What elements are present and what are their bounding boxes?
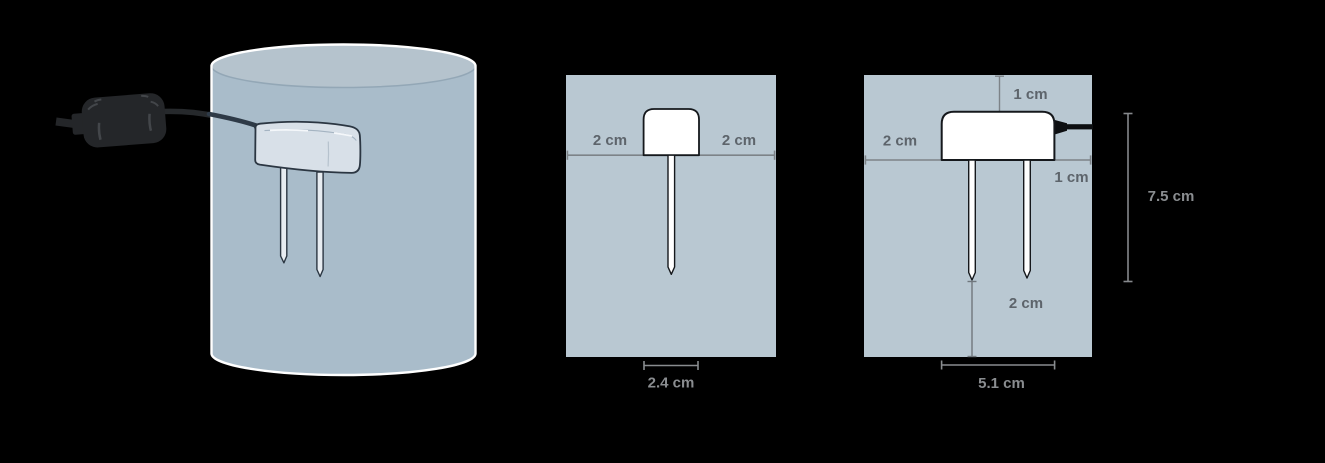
svg-text:2 cm: 2 cm — [1009, 295, 1043, 312]
svg-text:2 cm: 2 cm — [722, 132, 756, 149]
svg-text:2.4 cm: 2.4 cm — [648, 375, 695, 392]
svg-text:7.5 cm: 7.5 cm — [1148, 188, 1195, 205]
svg-text:5.1 cm: 5.1 cm — [978, 375, 1025, 392]
svg-text:2 cm: 2 cm — [593, 132, 627, 149]
svg-text:2 cm: 2 cm — [883, 133, 917, 150]
svg-text:1 cm: 1 cm — [1054, 169, 1088, 186]
svg-text:1 cm: 1 cm — [1013, 86, 1047, 103]
